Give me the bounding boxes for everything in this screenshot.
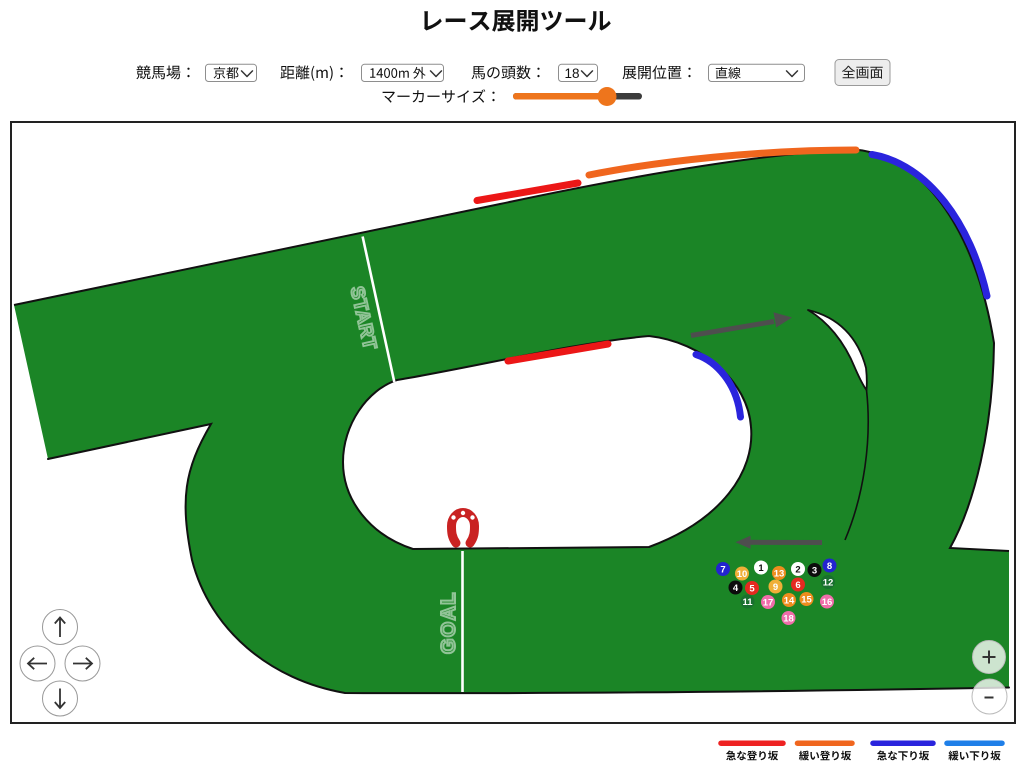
svg-text:2: 2 bbox=[795, 564, 800, 575]
svg-text:10: 10 bbox=[737, 569, 748, 580]
svg-text:5: 5 bbox=[749, 583, 755, 594]
svg-text:18: 18 bbox=[783, 613, 794, 624]
svg-text:17: 17 bbox=[763, 597, 774, 608]
svg-text:6: 6 bbox=[795, 580, 800, 591]
svg-text:18: 18 bbox=[565, 66, 580, 81]
svg-text:9: 9 bbox=[773, 582, 778, 593]
svg-text:15: 15 bbox=[801, 594, 812, 605]
svg-text:7: 7 bbox=[720, 564, 725, 575]
svg-text:16: 16 bbox=[822, 597, 833, 608]
svg-text:12: 12 bbox=[823, 577, 834, 588]
svg-text:3: 3 bbox=[812, 565, 817, 576]
svg-text:14: 14 bbox=[784, 595, 795, 606]
svg-text:8: 8 bbox=[827, 561, 832, 572]
svg-text:1: 1 bbox=[758, 563, 764, 574]
svg-text:4: 4 bbox=[733, 583, 739, 594]
svg-text:13: 13 bbox=[774, 568, 785, 579]
svg-text:GOAL: GOAL bbox=[438, 591, 460, 654]
svg-text:11: 11 bbox=[742, 597, 753, 608]
